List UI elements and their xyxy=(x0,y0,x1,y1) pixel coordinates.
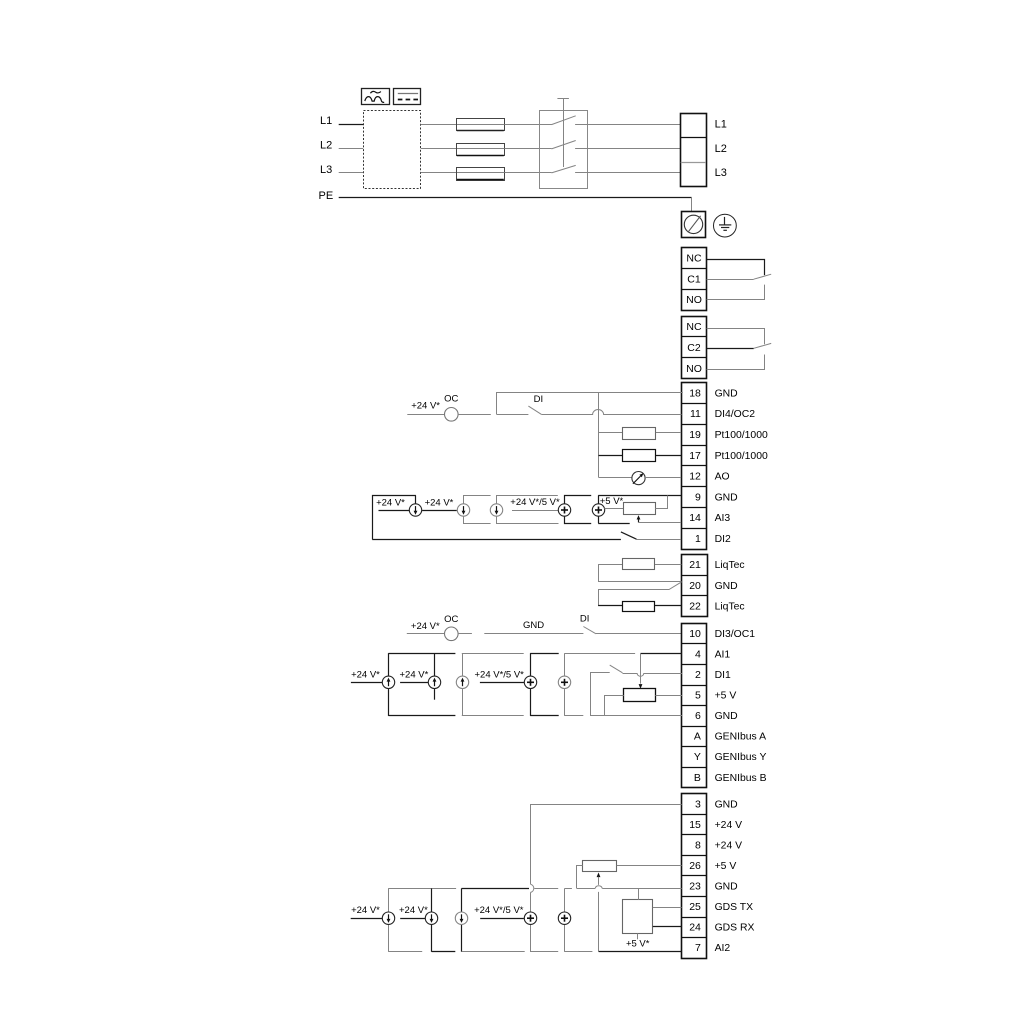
svg-text:+24 V*: +24 V* xyxy=(411,621,440,632)
svg-text:2: 2 xyxy=(695,669,701,681)
svg-text:6: 6 xyxy=(695,710,701,722)
svg-text:GND: GND xyxy=(715,492,738,503)
svg-text:L2: L2 xyxy=(715,143,727,155)
svg-text:25: 25 xyxy=(689,901,701,913)
svg-text:+5 V*: +5 V* xyxy=(626,938,650,949)
svg-text:GND: GND xyxy=(715,581,738,592)
svg-text:DI: DI xyxy=(580,614,590,625)
svg-text:+24 V*/5 V*: +24 V*/5 V* xyxy=(475,670,525,681)
svg-text:L1: L1 xyxy=(320,115,332,127)
svg-text:26: 26 xyxy=(689,860,701,872)
svg-text:L1: L1 xyxy=(715,119,727,131)
svg-text:L2: L2 xyxy=(320,140,332,152)
svg-text:PE: PE xyxy=(319,190,334,202)
svg-text:+24 V: +24 V xyxy=(715,840,743,851)
svg-text:LiqTec: LiqTec xyxy=(715,602,745,613)
svg-text:20: 20 xyxy=(689,580,701,592)
svg-text:L3: L3 xyxy=(715,167,727,179)
svg-text:23: 23 xyxy=(689,881,701,893)
svg-text:C2: C2 xyxy=(687,342,701,354)
svg-text:GND: GND xyxy=(715,711,738,722)
svg-text:+5 V: +5 V xyxy=(715,691,737,702)
svg-text:DI2: DI2 xyxy=(715,534,731,545)
svg-text:+24 V*: +24 V* xyxy=(399,905,428,916)
svg-text:GND: GND xyxy=(715,799,738,810)
svg-text:AO: AO xyxy=(715,472,730,483)
svg-text:8: 8 xyxy=(695,839,701,851)
svg-text:DI: DI xyxy=(534,394,544,405)
svg-text:GDS RX: GDS RX xyxy=(715,923,755,934)
svg-text:21: 21 xyxy=(689,559,701,571)
svg-text:AI1: AI1 xyxy=(715,650,731,661)
svg-text:Pt100/1000: Pt100/1000 xyxy=(715,451,768,462)
svg-text:GND: GND xyxy=(523,620,544,631)
svg-text:Y: Y xyxy=(694,751,701,763)
svg-text:NO: NO xyxy=(686,294,702,306)
svg-text:A: A xyxy=(694,731,701,743)
svg-text:+24 V*/5 V*: +24 V*/5 V* xyxy=(510,497,560,508)
svg-text:GND: GND xyxy=(715,388,738,399)
svg-text:18: 18 xyxy=(689,387,701,399)
svg-text:+24 V*: +24 V* xyxy=(425,498,454,509)
svg-text:+24 V*: +24 V* xyxy=(376,498,405,509)
svg-text:+24 V*: +24 V* xyxy=(400,669,429,680)
svg-text:+24 V: +24 V xyxy=(715,820,743,831)
svg-text:Pt100/1000: Pt100/1000 xyxy=(715,430,768,441)
svg-text:9: 9 xyxy=(695,491,701,503)
svg-text:GENIbus B: GENIbus B xyxy=(715,773,767,784)
svg-text:LiqTec: LiqTec xyxy=(715,560,745,571)
svg-text:+24 V*: +24 V* xyxy=(351,905,380,916)
svg-text:12: 12 xyxy=(689,471,701,483)
svg-text:19: 19 xyxy=(689,429,701,441)
svg-text:15: 15 xyxy=(689,819,701,831)
svg-text:11: 11 xyxy=(690,408,701,420)
svg-text:24: 24 xyxy=(689,922,701,934)
svg-text:+24 V*: +24 V* xyxy=(351,669,380,680)
svg-text:14: 14 xyxy=(689,512,701,524)
svg-text:DI1: DI1 xyxy=(715,670,731,681)
svg-text:3: 3 xyxy=(695,798,701,810)
svg-text:OC: OC xyxy=(444,394,458,405)
svg-text:4: 4 xyxy=(695,649,701,661)
svg-text:10: 10 xyxy=(689,628,701,640)
svg-text:+24 V*: +24 V* xyxy=(411,401,440,412)
svg-text:DI3/OC1: DI3/OC1 xyxy=(715,629,756,640)
svg-text:+5 V: +5 V xyxy=(715,861,737,872)
svg-text:AI2: AI2 xyxy=(715,943,731,954)
svg-text:GND: GND xyxy=(715,882,738,893)
svg-text:DI4/OC2: DI4/OC2 xyxy=(715,409,756,420)
svg-text:NO: NO xyxy=(686,363,702,375)
svg-text:GENIbus A: GENIbus A xyxy=(715,732,766,743)
svg-text:OC: OC xyxy=(444,614,458,625)
svg-text:AI3: AI3 xyxy=(715,513,731,524)
svg-text:NC: NC xyxy=(686,253,702,265)
svg-text:GDS TX: GDS TX xyxy=(715,902,754,913)
svg-text:NC: NC xyxy=(686,321,702,333)
svg-text:B: B xyxy=(694,772,701,784)
svg-text:22: 22 xyxy=(689,601,701,613)
svg-text:C1: C1 xyxy=(687,273,701,285)
svg-text:L3: L3 xyxy=(320,164,332,176)
svg-text:7: 7 xyxy=(695,942,701,954)
svg-text:5: 5 xyxy=(695,690,701,702)
svg-text:1: 1 xyxy=(695,533,701,545)
svg-text:+24 V*/5 V*: +24 V*/5 V* xyxy=(474,905,524,916)
svg-text:17: 17 xyxy=(689,450,701,462)
svg-text:GENIbus Y: GENIbus Y xyxy=(715,752,767,763)
